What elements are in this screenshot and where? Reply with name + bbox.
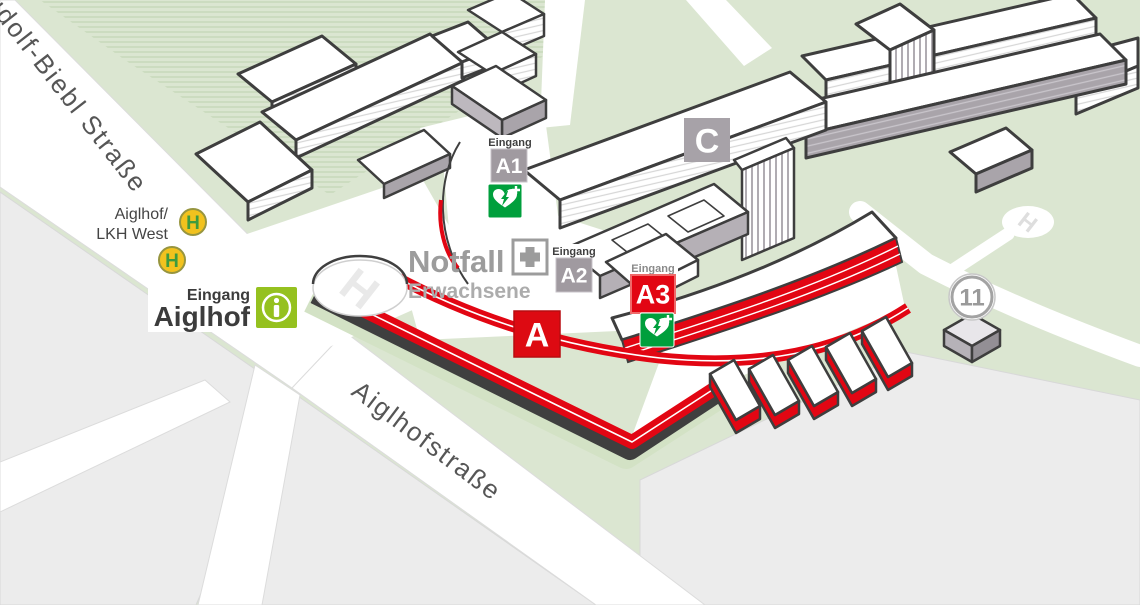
bus-stop-label-line1: Aiglhof/ <box>115 206 169 223</box>
emergency-label: Notfall Erwachsene <box>408 240 547 303</box>
emergency-cross-icon <box>513 240 547 274</box>
info-icon <box>256 287 297 328</box>
svg-text:11: 11 <box>959 285 984 312</box>
svg-text:A1: A1 <box>496 155 523 178</box>
svg-text:H: H <box>186 213 200 234</box>
defibrillator-icon <box>488 184 522 218</box>
entrance-aiglhof-name: Aiglhof <box>154 301 251 332</box>
svg-text:Eingang: Eingang <box>552 246 595 258</box>
svg-text:A3: A3 <box>636 280 671 310</box>
entrance-aiglhof: Eingang Aiglhof <box>148 276 298 332</box>
svg-text:H: H <box>165 251 179 272</box>
emergency-title: Notfall <box>408 244 504 279</box>
svg-text:Eingang: Eingang <box>488 137 531 149</box>
map-canvas: H 11 H Rudolf-Biebl Straße Aiglhofstraße… <box>0 0 1140 605</box>
entrance-a1-badge: Eingang A1 <box>487 135 533 182</box>
building-c-badge: C <box>684 118 730 162</box>
building-a-badge: A <box>514 311 560 357</box>
campus-map[interactable]: H 11 H Rudolf-Biebl Straße Aiglhofstraße… <box>0 0 1140 605</box>
bus-stop-label-line2: LKH West <box>96 226 168 243</box>
emergency-subtitle: Erwachsene <box>408 280 531 303</box>
svg-text:C: C <box>695 123 720 161</box>
defibrillator-icon-2 <box>640 313 674 347</box>
svg-text:A2: A2 <box>561 265 588 288</box>
entrance-a2-badge: Eingang A2 <box>552 244 596 292</box>
bus-stop-icon: H <box>180 209 206 235</box>
building-11-badge: 11 <box>949 274 995 320</box>
entrance-a3-badge: Eingang A3 <box>628 261 678 313</box>
svg-text:Eingang: Eingang <box>631 263 674 275</box>
bus-stop-icon-2: H <box>159 247 185 273</box>
helipad-small: H <box>1002 206 1054 238</box>
svg-text:A: A <box>525 317 550 355</box>
